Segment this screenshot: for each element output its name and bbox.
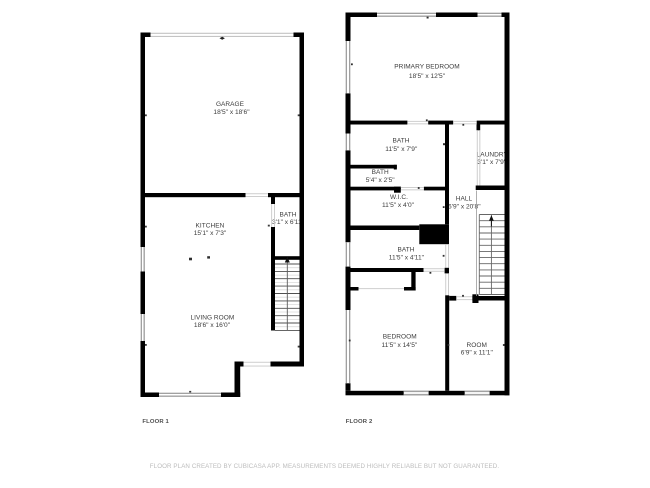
svg-text:11'5" x 4'0": 11'5" x 4'0": [382, 202, 415, 209]
svg-text:LAUNDRY: LAUNDRY: [477, 152, 509, 159]
svg-text:BATH: BATH: [392, 138, 409, 145]
svg-text:BATH: BATH: [397, 247, 414, 254]
svg-text:11'5" x 4'11": 11'5" x 4'11": [389, 254, 425, 261]
svg-text:BATH: BATH: [279, 212, 296, 219]
svg-text:6'9" x 11'1": 6'9" x 11'1": [461, 349, 494, 356]
svg-text:18'5" x 18'6": 18'5" x 18'6": [213, 109, 250, 116]
svg-text:BEDROOM: BEDROOM: [383, 334, 417, 341]
svg-text:ROOM: ROOM: [466, 342, 486, 349]
svg-text:3'1" x 7'9": 3'1" x 7'9": [477, 159, 506, 166]
svg-text:11'5" x 14'5": 11'5" x 14'5": [382, 342, 418, 349]
svg-text:15'1" x 7'3": 15'1" x 7'3": [194, 230, 227, 237]
svg-text:FLOOR 1: FLOOR 1: [142, 419, 169, 425]
svg-text:HALL: HALL: [456, 196, 473, 203]
svg-text:5'4" x 2'5": 5'4" x 2'5": [366, 177, 395, 184]
svg-text:W.I.C.: W.I.C.: [390, 194, 408, 201]
svg-text:18'5" x 12'5": 18'5" x 12'5": [409, 73, 446, 80]
svg-text:GARAGE: GARAGE: [216, 101, 245, 108]
svg-text:KITCHEN: KITCHEN: [196, 222, 225, 229]
svg-text:BATH: BATH: [372, 169, 389, 176]
svg-text:FLOOR 2: FLOOR 2: [346, 419, 373, 425]
svg-text:18'6" x 16'0": 18'6" x 16'0": [194, 322, 231, 329]
svg-text:11'5" x 7'9": 11'5" x 7'9": [385, 146, 418, 153]
svg-text:PRIMARY BEDROOM: PRIMARY BEDROOM: [394, 64, 460, 71]
svg-text:FLOOR PLAN CREATED BY CUBICASA: FLOOR PLAN CREATED BY CUBICASA APP. MEAS…: [150, 463, 500, 470]
svg-text:LIVING ROOM: LIVING ROOM: [190, 314, 234, 321]
